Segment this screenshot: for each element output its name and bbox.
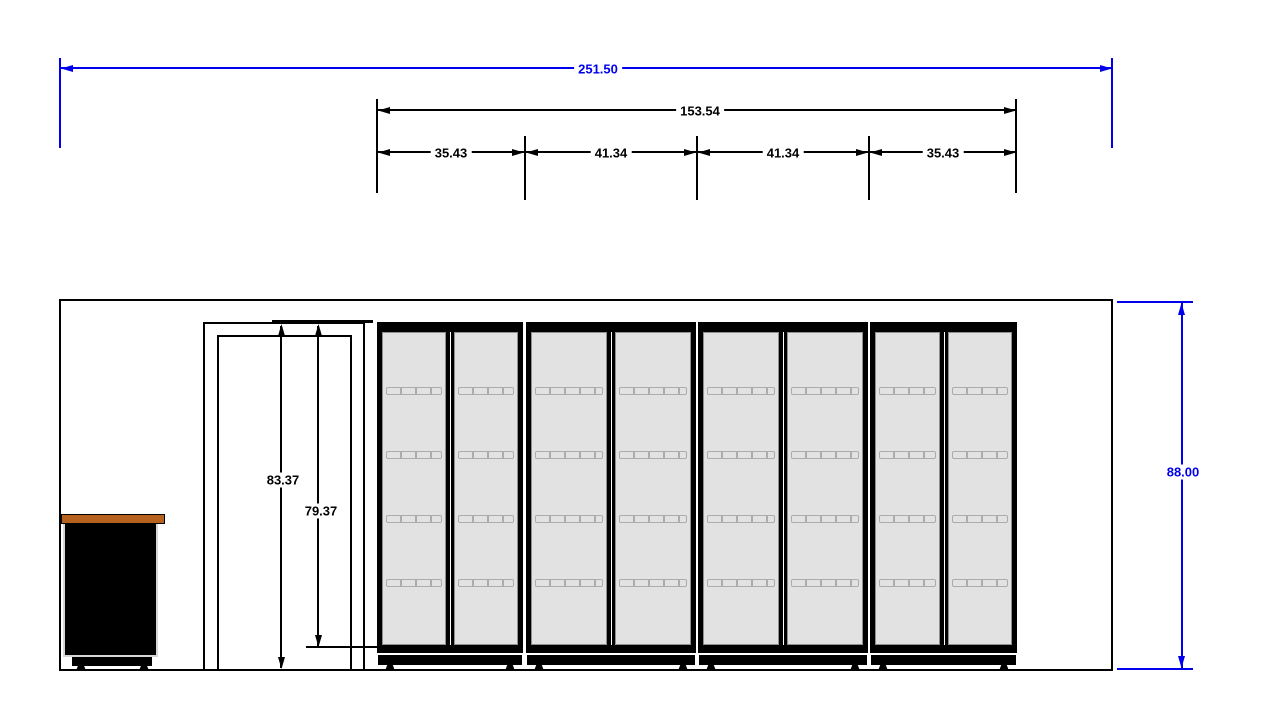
shelf-strip bbox=[791, 515, 859, 523]
cooler-glass-door bbox=[875, 332, 940, 645]
cooler-glass-door bbox=[703, 332, 779, 645]
door-opening-height-dim-line bbox=[317, 326, 319, 646]
cooler-foot bbox=[878, 665, 888, 671]
cooler-cabinet bbox=[377, 322, 523, 653]
shelf-strip bbox=[707, 515, 775, 523]
shelf-strip bbox=[386, 451, 442, 459]
bay-dim-label-1: 35.43 bbox=[431, 146, 472, 161]
cooler-foot bbox=[706, 665, 716, 671]
extension-line bbox=[1111, 58, 1113, 148]
shelf-strip bbox=[707, 387, 775, 395]
cooler-foot bbox=[678, 665, 688, 671]
bay-dim-label-2: 41.34 bbox=[591, 146, 632, 161]
counter-body bbox=[65, 524, 156, 655]
shelf-strip bbox=[707, 451, 775, 459]
shelf-strip bbox=[791, 387, 859, 395]
extension-line bbox=[1117, 668, 1193, 670]
cooler-foot bbox=[534, 665, 544, 671]
shelf-strip bbox=[952, 515, 1009, 523]
lineup-width-dim-label: 153.54 bbox=[676, 104, 724, 119]
extension-line bbox=[59, 58, 61, 148]
extension-line bbox=[1015, 99, 1017, 193]
shelf-strip bbox=[879, 579, 936, 587]
cooler-glass-door bbox=[454, 332, 518, 645]
shelf-strip bbox=[535, 579, 603, 587]
overall-width-dim-label: 251.50 bbox=[574, 62, 622, 77]
extension-line bbox=[524, 136, 526, 200]
cooler-kick-plate bbox=[527, 655, 695, 665]
cooler-section-1 bbox=[377, 322, 523, 671]
shelf-strip bbox=[952, 579, 1009, 587]
dim-arrow-icon bbox=[1178, 303, 1185, 315]
cooler-foot bbox=[850, 665, 860, 671]
shelf-strip bbox=[386, 387, 442, 395]
cooler-glass-door bbox=[948, 332, 1013, 645]
cooler-section-4 bbox=[870, 322, 1017, 671]
cooler-foot bbox=[385, 665, 395, 671]
door-mullion-line bbox=[783, 332, 784, 645]
bay-dim-line bbox=[378, 151, 1016, 153]
shelf-strip bbox=[386, 515, 442, 523]
extension-line bbox=[696, 136, 698, 200]
extension-line bbox=[376, 99, 378, 193]
door-mullion-line bbox=[450, 332, 451, 645]
extension-line bbox=[306, 646, 377, 648]
cooler-glass-door bbox=[531, 332, 607, 645]
door-mullion-line bbox=[944, 332, 945, 645]
shelf-strip bbox=[535, 515, 603, 523]
shelf-strip bbox=[619, 579, 687, 587]
shelf-strip bbox=[879, 387, 936, 395]
door-mullion-line bbox=[611, 332, 612, 645]
counter-top bbox=[61, 514, 165, 524]
shelf-strip bbox=[458, 387, 514, 395]
shelf-strip bbox=[458, 579, 514, 587]
shelf-strip bbox=[879, 451, 936, 459]
shelf-strip bbox=[619, 451, 687, 459]
cooler-kick-plate bbox=[871, 655, 1016, 665]
shelf-strip bbox=[707, 579, 775, 587]
cooler-foot bbox=[505, 665, 515, 671]
shelf-strip bbox=[386, 579, 442, 587]
shelf-strip bbox=[791, 579, 859, 587]
cooler-foot bbox=[999, 665, 1009, 671]
bay-dim-label-3: 41.34 bbox=[763, 146, 804, 161]
wall-height-dim-line bbox=[1181, 303, 1183, 668]
cooler-section-2 bbox=[526, 322, 696, 671]
shelf-strip bbox=[458, 451, 514, 459]
cooler-cabinet bbox=[526, 322, 696, 653]
shelf-strip bbox=[791, 451, 859, 459]
shelf-strip bbox=[619, 515, 687, 523]
cooler-kick-plate bbox=[378, 655, 522, 665]
door-opening-height-dim-label: 79.37 bbox=[301, 504, 342, 519]
cooler-cabinet bbox=[870, 322, 1017, 653]
door-frame-height-dim-label: 83.37 bbox=[263, 473, 304, 488]
extension-line bbox=[272, 320, 373, 323]
shelf-strip bbox=[458, 515, 514, 523]
wall-height-dim-label: 88.00 bbox=[1163, 465, 1204, 480]
cooler-glass-door bbox=[382, 332, 446, 645]
cooler-kick-plate bbox=[699, 655, 867, 665]
extension-line bbox=[868, 136, 870, 200]
cooler-glass-door bbox=[615, 332, 691, 645]
shelf-strip bbox=[952, 451, 1009, 459]
counter-base bbox=[72, 657, 152, 666]
bay-dim-label-4: 35.43 bbox=[923, 146, 964, 161]
cooler-glass-door bbox=[787, 332, 863, 645]
shelf-strip bbox=[535, 451, 603, 459]
cooler-lineup bbox=[377, 322, 1017, 671]
door-frame-height-dim-line bbox=[280, 326, 282, 668]
cooler-section-3 bbox=[698, 322, 868, 671]
cooler-cabinet bbox=[698, 322, 868, 653]
elevation-drawing: 251.50 153.54 35.43 41.34 41.34 35.43 83… bbox=[0, 0, 1264, 711]
shelf-strip bbox=[952, 387, 1009, 395]
shelf-strip bbox=[879, 515, 936, 523]
shelf-strip bbox=[535, 387, 603, 395]
shelf-strip bbox=[619, 387, 687, 395]
dim-arrow-icon bbox=[1178, 656, 1185, 668]
